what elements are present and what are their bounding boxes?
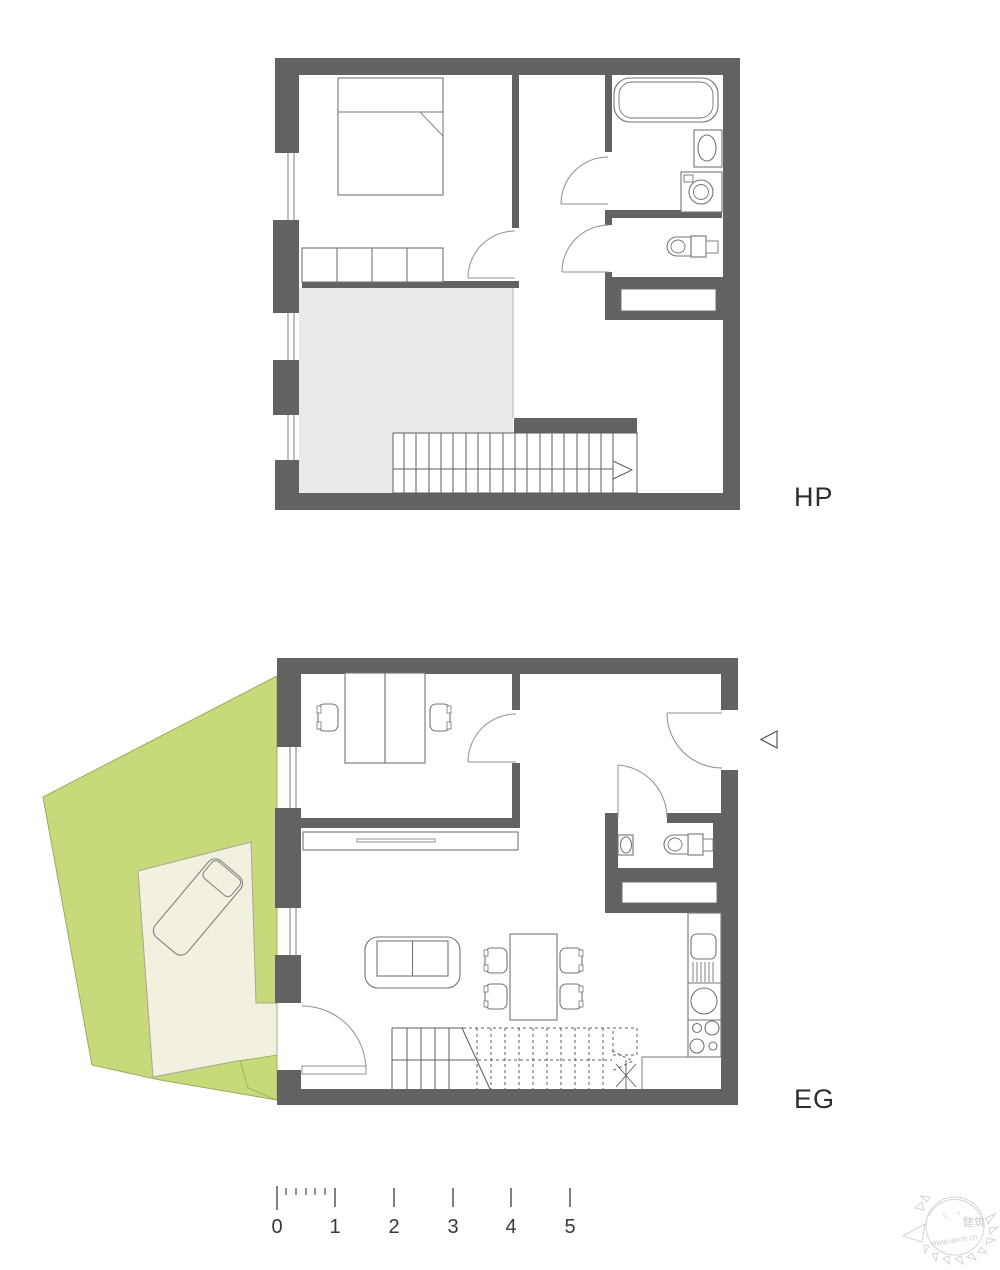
kitchen-sink	[691, 934, 716, 959]
bedroom-door-arc	[468, 231, 515, 278]
hp-label: HP	[794, 482, 834, 512]
watermark-logo: 建筑 www.iarch.cn	[903, 1196, 998, 1264]
eg-niche-slot	[622, 882, 717, 903]
hp-stairs	[393, 433, 637, 493]
hp-plan	[273, 58, 740, 510]
eg-toilet	[664, 834, 713, 855]
scale-bar: 0 1 2 3 4 5	[271, 1186, 575, 1238]
flag-icon	[903, 1224, 925, 1242]
double-bed	[338, 78, 443, 195]
kitchen-counter	[642, 913, 721, 1089]
scale-tick-2: 2	[388, 1216, 399, 1238]
hp-doors	[468, 157, 609, 278]
scale-tick-3: 3	[447, 1216, 458, 1238]
shaft-marker	[616, 1060, 636, 1089]
scale-tick-0: 0	[271, 1216, 282, 1238]
wc-door-arc	[562, 225, 609, 272]
office-desk	[345, 673, 425, 763]
wardrobe	[302, 248, 443, 282]
scale-tick-5: 5	[564, 1216, 575, 1238]
office-door-arc	[468, 714, 516, 762]
watermark-caption: 建筑	[963, 1215, 985, 1229]
eg-label: EG	[794, 1084, 835, 1114]
sideboard	[303, 832, 518, 850]
scale-major-ticks	[277, 1186, 570, 1210]
bathroom-sink	[694, 130, 722, 167]
watermark-url: www.iarch.cn	[929, 1233, 978, 1249]
scale-tick-4: 4	[505, 1216, 516, 1238]
stairs-up-arrow	[612, 1051, 633, 1071]
floor-plans-canvas: HP EG 0 1 2 3 4 5 建筑 www.iarch.cn	[0, 0, 1000, 1265]
entrance-door-arc	[667, 713, 722, 768]
bathtub	[614, 78, 718, 122]
kitchen-nook-lines	[642, 1057, 688, 1089]
eg-wc-door-arc	[618, 765, 667, 818]
washing-machine	[681, 172, 722, 212]
hp-niche-slot	[621, 289, 716, 311]
scale-minor-ticks	[286, 1188, 325, 1195]
sun-rays-icon	[915, 1196, 998, 1264]
eg-plan	[275, 658, 777, 1105]
terrace-door	[302, 1006, 366, 1074]
dining-table	[510, 934, 557, 1020]
office-chair-left	[317, 704, 338, 731]
eg-stairs	[392, 1028, 637, 1089]
scale-tick-1: 1	[329, 1216, 340, 1238]
sofa	[365, 937, 460, 988]
eg-wc-sink	[618, 835, 633, 855]
stairs-cut-line	[462, 1028, 490, 1089]
bathroom-door-arc	[561, 157, 608, 204]
garden-area	[43, 676, 277, 1100]
office-chair-right	[430, 704, 451, 731]
toilet	[667, 236, 718, 257]
entrance-marker	[761, 731, 777, 748]
